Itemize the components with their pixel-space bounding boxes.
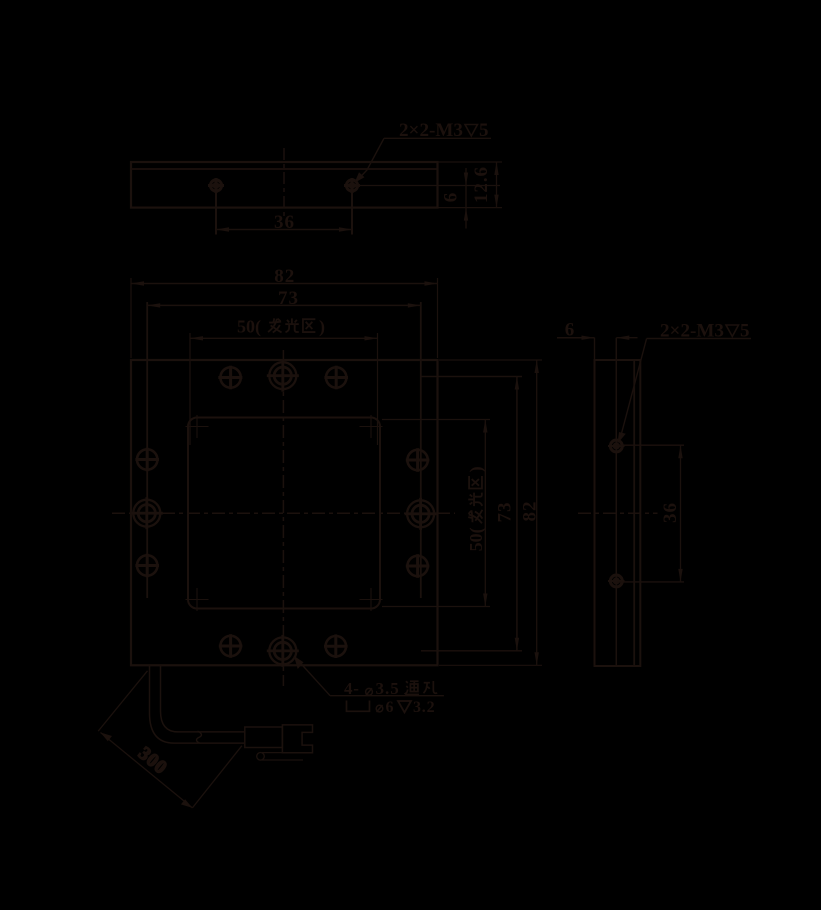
svg-text:73: 73	[495, 503, 516, 523]
svg-text:36: 36	[274, 212, 294, 233]
svg-text:3.2: 3.2	[413, 699, 435, 716]
svg-text:): )	[319, 317, 325, 338]
svg-text:82: 82	[274, 266, 294, 287]
svg-text:73: 73	[278, 288, 298, 309]
svg-text:6: 6	[565, 320, 575, 341]
svg-text:50(: 50(	[237, 317, 261, 338]
svg-text:3.5: 3.5	[376, 679, 400, 698]
svg-text:6: 6	[386, 699, 395, 716]
svg-text:50(: 50(	[466, 527, 487, 551]
svg-text:36: 36	[660, 503, 681, 523]
svg-text:82: 82	[520, 502, 541, 522]
svg-text:): )	[466, 466, 487, 472]
svg-text:12.6: 12.6	[471, 167, 492, 203]
svg-text:6: 6	[441, 193, 462, 203]
svg-text:4-: 4-	[344, 679, 360, 698]
